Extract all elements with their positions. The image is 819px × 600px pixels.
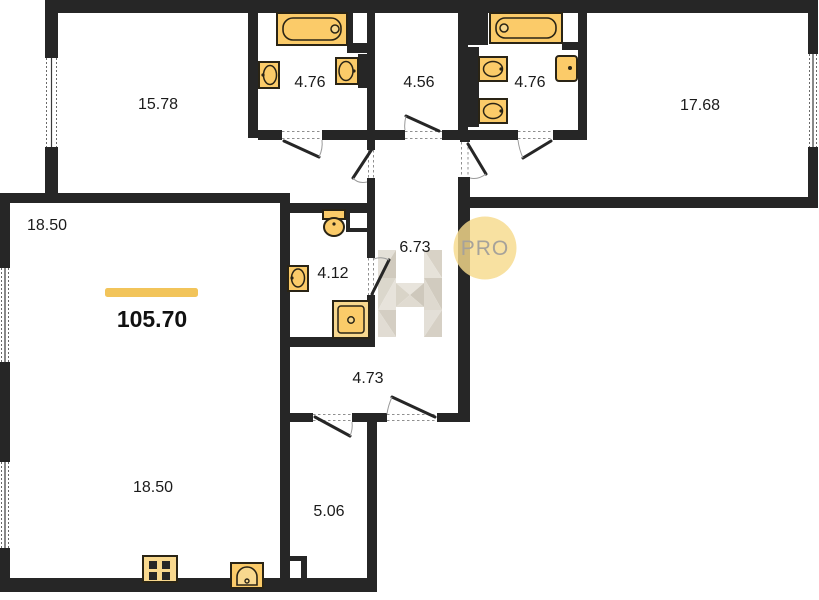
room-area-label: 4.56	[403, 74, 434, 91]
bathtub-icon	[490, 13, 562, 43]
pro-badge-text: PRO	[461, 237, 510, 260]
room-area-label: 4.76	[514, 74, 545, 91]
sink-icon	[479, 99, 507, 123]
door	[353, 149, 374, 183]
kitchen-sink-icon	[231, 563, 263, 588]
sink-icon	[288, 266, 308, 291]
total-area-label: 105.70	[117, 306, 187, 332]
window	[0, 263, 10, 367]
door	[518, 132, 553, 159]
door-entrance	[387, 397, 437, 421]
door	[282, 132, 322, 158]
door	[462, 142, 487, 179]
room-area-label: 17.68	[680, 97, 720, 114]
room-area-label: 5.06	[313, 503, 344, 520]
room-area-label: 18.50	[133, 479, 173, 496]
window	[0, 456, 10, 554]
room-area-label: 4.12	[317, 265, 348, 282]
window	[45, 52, 58, 153]
door	[405, 116, 442, 139]
floor-plan-svg: PRO	[0, 0, 819, 600]
door	[313, 415, 352, 437]
room-area-label: 4.76	[294, 74, 325, 91]
bathtub-icon	[277, 13, 347, 45]
watermark-pro-badge: PRO	[454, 217, 517, 280]
room-area-label: 4.73	[352, 370, 383, 387]
stove-icon	[143, 556, 177, 582]
window	[808, 48, 818, 153]
floor-plan: PRO	[0, 0, 819, 600]
sink-icon	[259, 62, 279, 88]
toilet-icon	[323, 210, 345, 236]
sink-icon	[336, 54, 368, 88]
room-area-label: 15.78	[138, 96, 178, 113]
accent-bar	[105, 288, 198, 297]
room-area-label: 18.50	[27, 217, 67, 234]
room-area-label: 6.73	[399, 239, 430, 256]
toilet-icon	[556, 56, 577, 81]
total-area: 105.70	[105, 288, 198, 332]
fixtures	[143, 13, 577, 588]
shower-icon	[333, 301, 369, 338]
